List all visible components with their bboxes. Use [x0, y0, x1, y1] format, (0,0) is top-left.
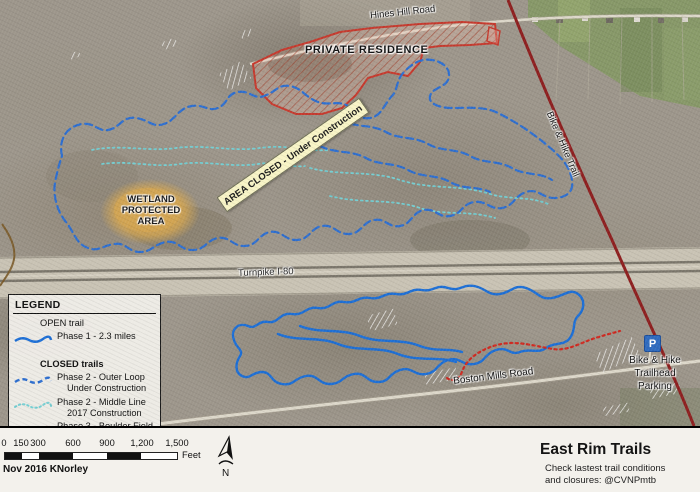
map-title: East Rim Trails — [540, 441, 700, 459]
scale-tick: 600 — [65, 438, 81, 448]
legend-item-line2: Under Construction — [57, 383, 146, 394]
legend-title: LEGEND — [15, 299, 156, 311]
credit-text: Nov 2016 KNorley — [3, 464, 88, 475]
scale-bar — [4, 452, 178, 460]
private-residence-area — [253, 22, 500, 114]
legend-divider — [13, 313, 156, 314]
legend-closed-header: CLOSED trails — [40, 359, 156, 369]
label-wetland-protected-area: WETLAND PROTECTED AREA — [103, 195, 199, 228]
legend-item-phase2-middle: Phase 2 - Middle Line 2017 Construction — [13, 397, 156, 419]
legend-item-label: Phase 2 - Middle Line 2017 Construction — [57, 397, 146, 419]
legend-open-header: OPEN trail — [40, 318, 156, 328]
small-red-parcel — [487, 27, 500, 45]
scale-bar-segment — [39, 453, 73, 459]
parking-icon: P — [644, 335, 661, 352]
north-label: N — [222, 468, 229, 479]
label-turnpike-i80: Turnpike I-80 — [238, 266, 294, 279]
scale-tick: 1,200 — [130, 438, 153, 448]
legend-item-label: Phase 1 - 2.3 miles — [57, 331, 136, 342]
map-screenshot: { "map": { "labels": { "hines_hill_road"… — [0, 0, 700, 490]
legend-item-line1: Phase 2 - Middle Line — [57, 397, 146, 408]
phase1-line-swatch — [13, 331, 57, 350]
scale-tick: 300 — [30, 438, 46, 448]
map-canvas: Hines Hill Road PRIVATE RESIDENCE AREA C… — [0, 0, 700, 426]
subtitle-line2: and closures: @CVNPmtb — [545, 475, 700, 487]
map-footer: 0 150 300 600 900 1,200 1,500 Feet Nov 2… — [0, 426, 700, 492]
parking-line2: Trailhead — [609, 367, 700, 380]
scale-tick: 900 — [99, 438, 115, 448]
scale-bar-segment — [107, 453, 141, 459]
north-arrow-icon: N — [210, 434, 244, 482]
wetland-line3: AREA — [103, 217, 199, 228]
scale-tick: 150 — [13, 438, 29, 448]
phase2-outer-line-swatch — [13, 372, 57, 391]
legend-box: LEGEND OPEN trail Phase 1 - 2.3 miles CL… — [8, 294, 161, 426]
parking-line3: Parking — [609, 380, 700, 393]
legend-item-label: Phase 2 - Outer Loop Under Construction — [57, 372, 146, 394]
legend-item-phase1: Phase 1 - 2.3 miles — [13, 331, 156, 350]
scale-bar-segment — [73, 453, 107, 459]
scale-bar-segment — [22, 453, 39, 459]
subtitle-line1: Check lastest trail conditions — [545, 463, 700, 475]
scale-tick: 1,500 — [165, 438, 188, 448]
label-trailhead-parking: Bike & Hike Trailhead Parking — [609, 354, 700, 393]
parking-line1: Bike & Hike — [609, 354, 700, 367]
label-private-residence: PRIVATE RESIDENCE — [305, 44, 428, 56]
north-arrow: N — [210, 434, 244, 487]
turnpike-band — [0, 247, 700, 299]
legend-item-phase2-outer: Phase 2 - Outer Loop Under Construction — [13, 372, 156, 394]
scale-bar-segment — [5, 453, 22, 459]
phase2-middle-line-swatch — [13, 397, 57, 416]
scale-bar-segment — [141, 453, 175, 459]
legend-item-line2: 2017 Construction — [57, 408, 146, 419]
scale-unit-label: Feet — [182, 450, 201, 460]
map-subtitle: Check lastest trail conditions and closu… — [545, 463, 700, 488]
legend-item-line1: Phase 2 - Outer Loop — [57, 372, 146, 383]
title-block: East Rim Trails Check lastest trail cond… — [540, 441, 700, 488]
scale-tick: 0 — [1, 438, 6, 448]
